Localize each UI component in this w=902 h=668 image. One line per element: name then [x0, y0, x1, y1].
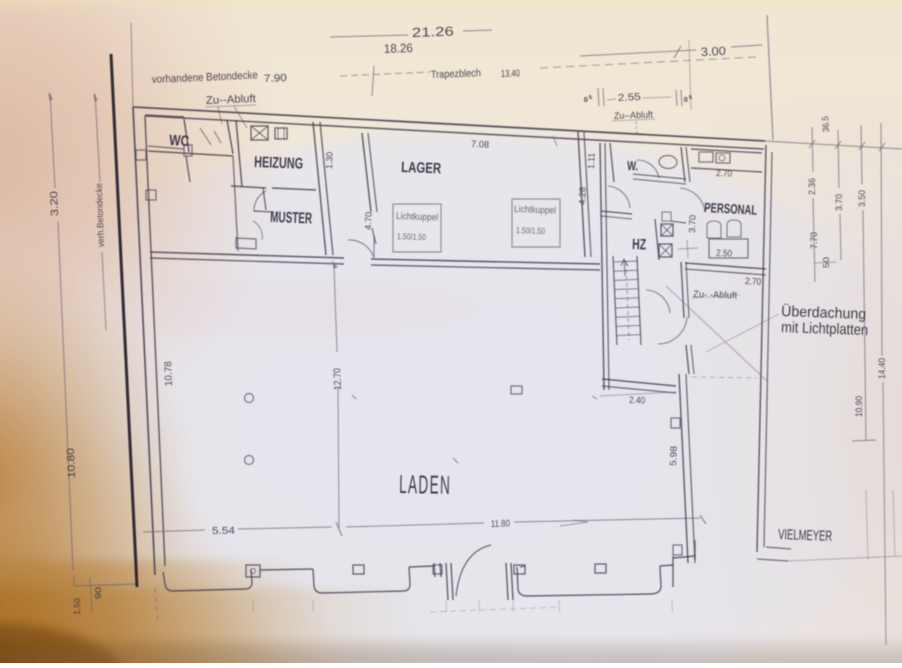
svg-text:7.08: 7.08: [471, 139, 489, 151]
svg-text:2.36: 2.36: [807, 178, 817, 195]
svg-text:LADEN: LADEN: [399, 469, 452, 500]
svg-text:VIELMEYER: VIELMEYER: [778, 527, 833, 545]
svg-text:10.80: 10.80: [65, 448, 78, 479]
svg-text:36.5: 36.5: [820, 116, 831, 133]
svg-text:1.50: 1.50: [72, 598, 82, 615]
svg-text:12.70: 12.70: [332, 368, 344, 391]
svg-text:14.40: 14.40: [877, 358, 887, 379]
svg-text:3.20: 3.20: [48, 191, 61, 217]
svg-text:HZ: HZ: [632, 236, 647, 253]
svg-text:10.90: 10.90: [854, 396, 864, 417]
svg-text:5: 5: [589, 95, 592, 101]
svg-text:10.78: 10.78: [163, 360, 175, 386]
svg-text:1.50/1.50: 1.50/1.50: [397, 231, 427, 242]
svg-text:PERSONAL: PERSONAL: [704, 200, 758, 218]
svg-text:WC: WC: [169, 132, 190, 150]
svg-text:2.50: 2.50: [716, 248, 732, 260]
svg-text:1.50/1.50: 1.50/1.50: [516, 225, 546, 236]
svg-text:LAGER: LAGER: [401, 159, 442, 177]
svg-text:21.26: 21.26: [412, 24, 454, 40]
svg-text:11.80: 11.80: [491, 518, 510, 530]
svg-text:7.70: 7.70: [809, 232, 819, 249]
svg-text:4.28: 4.28: [577, 187, 588, 205]
svg-text:0: 0: [584, 97, 588, 104]
svg-text:2.70: 2.70: [716, 168, 732, 180]
svg-text:1.11: 1.11: [586, 153, 597, 169]
svg-text:3.70: 3.70: [687, 215, 698, 233]
svg-text:1.30: 1.30: [324, 152, 335, 169]
svg-text:13.40: 13.40: [501, 68, 521, 80]
svg-text:18.26: 18.26: [384, 41, 414, 56]
svg-text:W.: W.: [627, 158, 639, 173]
svg-text:5.54: 5.54: [212, 526, 236, 537]
svg-text:90: 90: [93, 587, 103, 599]
svg-text:2.70: 2.70: [745, 276, 762, 288]
svg-text:0: 0: [684, 97, 688, 104]
svg-text:2.40: 2.40: [629, 395, 645, 407]
svg-text:3.70: 3.70: [834, 194, 844, 211]
svg-text:5.98: 5.98: [668, 446, 679, 466]
svg-text:MUSTER: MUSTER: [270, 209, 313, 227]
svg-text:Lichtkuppel: Lichtkuppel: [514, 204, 556, 216]
svg-text:3.00: 3.00: [700, 44, 726, 59]
svg-text:4.70: 4.70: [363, 212, 374, 230]
svg-text:HEIZUNG: HEIZUNG: [254, 154, 304, 173]
svg-text:7.90: 7.90: [264, 72, 288, 85]
svg-text:Lichtkuppel: Lichtkuppel: [396, 211, 438, 223]
svg-text:5: 5: [689, 95, 692, 101]
svg-text:Trapezblech: Trapezblech: [431, 67, 482, 81]
svg-text:2.55: 2.55: [618, 92, 642, 104]
svg-text:mit Lichtplatten: mit Lichtplatten: [781, 319, 869, 339]
svg-text:3.50: 3.50: [857, 190, 867, 207]
